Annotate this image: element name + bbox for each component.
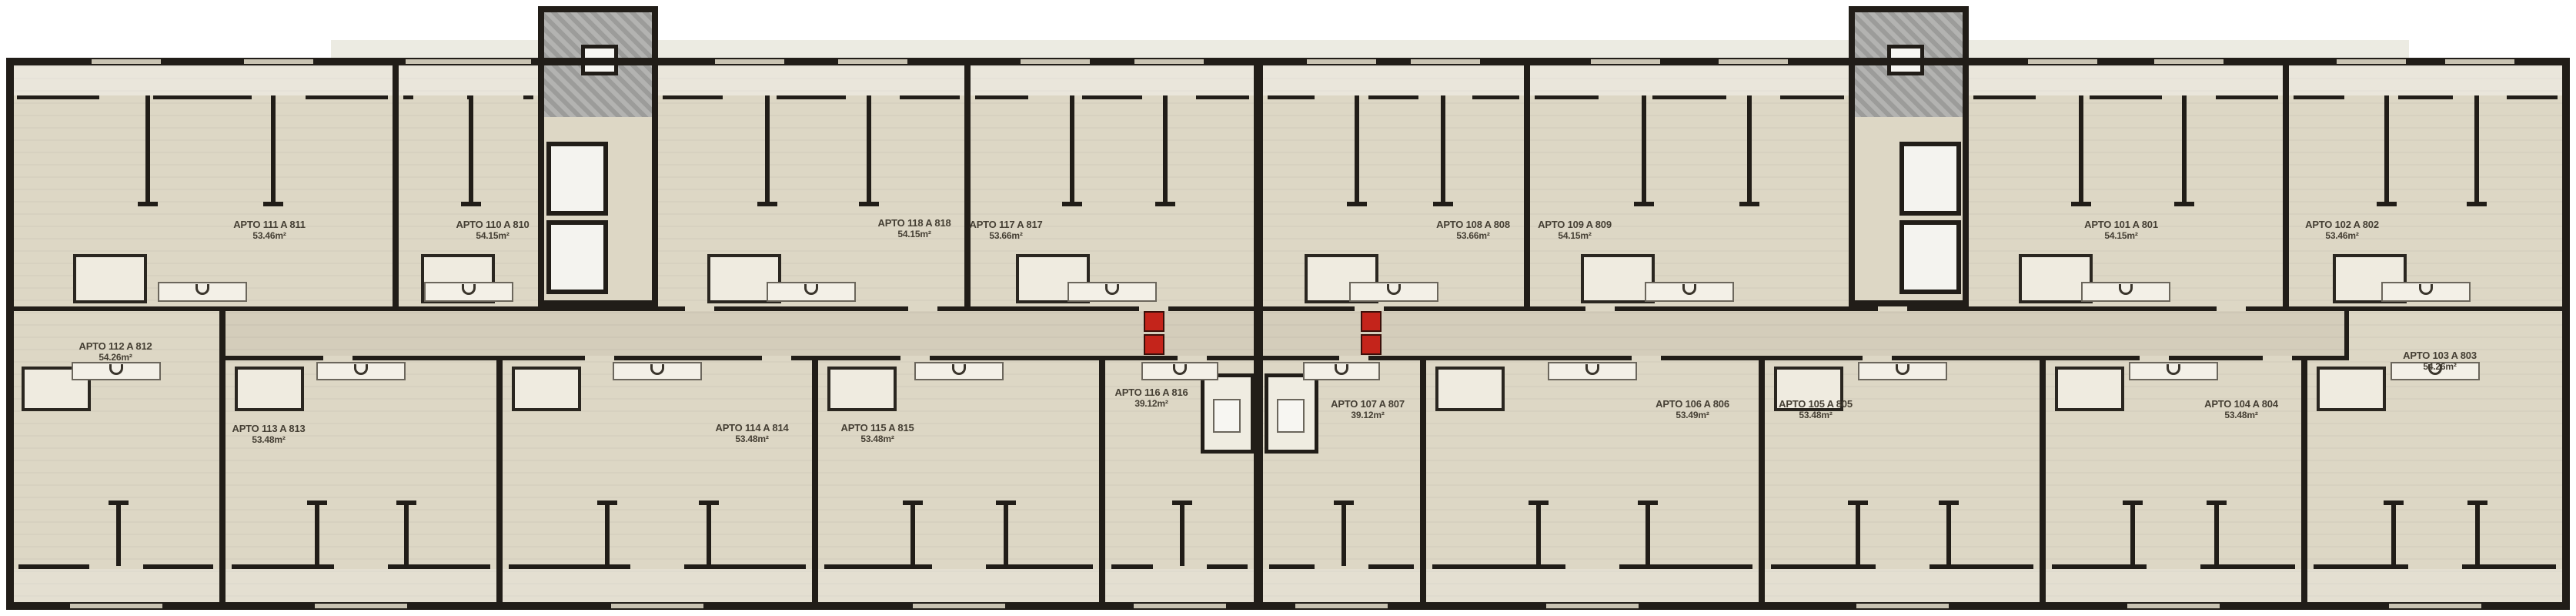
balcony-wall bbox=[663, 95, 960, 99]
partition-tick bbox=[1347, 202, 1367, 206]
apartment-label-107: APTO 107 A 807 39.12m² bbox=[1331, 399, 1405, 420]
door-gap bbox=[685, 306, 714, 311]
balcony-wall bbox=[1269, 564, 1315, 569]
partition-stub bbox=[2475, 500, 2480, 566]
lower-balcony-strip bbox=[14, 569, 2562, 602]
elevator-left-2 bbox=[546, 220, 608, 294]
wall bbox=[219, 356, 2349, 360]
window bbox=[611, 604, 703, 608]
apartment-label-102: APTO 102 A 802 53.46m² bbox=[2305, 219, 2379, 241]
window-gap bbox=[1726, 95, 1780, 99]
partition-stub bbox=[867, 95, 871, 206]
partition-stub bbox=[1180, 500, 1184, 566]
partition-stub bbox=[1946, 500, 1951, 566]
window bbox=[1719, 59, 1788, 64]
balcony-wall bbox=[2052, 564, 2147, 569]
wall bbox=[812, 360, 818, 604]
partition-stub bbox=[1536, 500, 1541, 566]
balcony-wall bbox=[1207, 564, 1248, 569]
partition-tick bbox=[2123, 500, 2143, 505]
apartment-area: 53.48m² bbox=[716, 434, 789, 444]
balcony-wall bbox=[2462, 564, 2557, 569]
partition-stub bbox=[1070, 95, 1074, 206]
partition-tick bbox=[1172, 500, 1192, 505]
window bbox=[315, 604, 407, 608]
partition-stub bbox=[2079, 95, 2083, 206]
wall bbox=[2283, 65, 2289, 306]
window bbox=[2028, 59, 2097, 64]
apartment-area: 54.15m² bbox=[1538, 230, 1612, 241]
partition-stub bbox=[2214, 500, 2219, 566]
partition-tick bbox=[996, 500, 1016, 505]
apartment-number: APTO 110 A 810 bbox=[456, 219, 530, 230]
window bbox=[462, 59, 531, 64]
apartment-label-109: APTO 109 A 809 54.15m² bbox=[1538, 219, 1612, 241]
door-gap bbox=[323, 356, 352, 360]
partition-stub bbox=[2474, 95, 2479, 206]
apartment-area: 53.46m² bbox=[2305, 230, 2379, 241]
window-gap bbox=[846, 95, 900, 99]
partition-tick bbox=[2207, 500, 2227, 505]
apartment-number: APTO 102 A 802 bbox=[2305, 219, 2379, 230]
apartment-label-103: APTO 103 A 803 54.26m² bbox=[2403, 350, 2477, 372]
apartment-number: APTO 114 A 814 bbox=[716, 422, 789, 434]
bathroom bbox=[827, 367, 897, 411]
wall bbox=[1420, 360, 1426, 604]
wall bbox=[1099, 360, 1105, 604]
wall bbox=[2040, 360, 2046, 604]
bathroom bbox=[235, 367, 304, 411]
bathroom bbox=[2317, 367, 2386, 411]
apartment-number: APTO 116 A 816 bbox=[1115, 387, 1188, 398]
door-gap bbox=[1339, 356, 1368, 360]
partition-stub bbox=[315, 500, 319, 566]
window bbox=[1134, 604, 1226, 608]
partition-tick bbox=[307, 500, 327, 505]
balcony-wall bbox=[1535, 95, 1844, 99]
partition-tick bbox=[597, 500, 617, 505]
partition-stub bbox=[2384, 95, 2389, 206]
apartment-area: 54.26m² bbox=[2403, 361, 2477, 372]
bathroom bbox=[2055, 367, 2124, 411]
balcony-wall bbox=[684, 564, 806, 569]
partition-stub bbox=[404, 500, 409, 566]
partition-tick bbox=[263, 202, 283, 206]
door-gap bbox=[2263, 356, 2292, 360]
door-gap bbox=[1178, 356, 1207, 360]
partition-stub bbox=[2130, 500, 2135, 566]
balcony-wall bbox=[1111, 564, 1153, 569]
window-gap bbox=[2344, 95, 2398, 99]
partition-stub bbox=[1341, 500, 1346, 566]
partition-tick bbox=[1638, 500, 1658, 505]
wall bbox=[1759, 360, 1765, 604]
apartment-label-114: APTO 114 A 814 53.48m² bbox=[716, 423, 789, 444]
partition-tick bbox=[1634, 202, 1654, 206]
window bbox=[2127, 604, 2220, 608]
wall bbox=[393, 65, 399, 306]
partition-tick bbox=[699, 500, 719, 505]
partition-tick bbox=[109, 500, 129, 505]
partition-tick bbox=[903, 500, 923, 505]
bathroom bbox=[512, 367, 581, 411]
partition-stub bbox=[145, 95, 150, 206]
balcony-wall bbox=[1771, 564, 1876, 569]
apartment-area: 53.48m² bbox=[841, 434, 914, 444]
partition-tick bbox=[1433, 202, 1453, 206]
apartment-label-105: APTO 105 A 805 53.48m² bbox=[1779, 399, 1853, 420]
window-gap bbox=[1418, 95, 1472, 99]
partition-tick bbox=[1848, 500, 1868, 505]
window bbox=[2389, 604, 2481, 608]
apartment-number: APTO 108 A 808 bbox=[1436, 219, 1510, 230]
door-gap bbox=[1863, 356, 1892, 360]
apartment-label-104: APTO 104 A 804 53.48m² bbox=[2204, 399, 2278, 420]
window-gap bbox=[2453, 95, 2507, 99]
partition-tick bbox=[138, 202, 158, 206]
door-gap bbox=[900, 356, 930, 360]
wall bbox=[2562, 58, 2570, 610]
wall bbox=[2344, 306, 2349, 360]
partition-stub bbox=[469, 95, 473, 206]
apartment-number: APTO 104 A 804 bbox=[2204, 398, 2278, 410]
apartment-label-106: APTO 106 A 806 53.49m² bbox=[1656, 399, 1729, 420]
elevator-right-2 bbox=[1899, 220, 1961, 294]
fire-door-marker bbox=[1144, 334, 1164, 355]
partition-stub bbox=[2182, 95, 2187, 206]
window bbox=[1411, 59, 1480, 64]
balcony-wall bbox=[1973, 95, 2278, 99]
partition-tick bbox=[461, 202, 481, 206]
apartment-label-116: APTO 116 A 816 39.12m² bbox=[1115, 387, 1188, 409]
partition-stub bbox=[1642, 95, 1646, 206]
balcony-wall bbox=[2314, 564, 2408, 569]
apartment-label-117: APTO 117 A 817 53.66m² bbox=[970, 219, 1043, 241]
apartment-number: APTO 113 A 813 bbox=[232, 423, 306, 434]
elevator-right-1 bbox=[1899, 142, 1961, 216]
wall bbox=[2349, 306, 2562, 311]
partition-stub bbox=[2391, 500, 2396, 566]
partition-stub bbox=[1163, 95, 1168, 206]
apartment-area: 54.26m² bbox=[79, 352, 152, 363]
partition-tick bbox=[757, 202, 777, 206]
window bbox=[2154, 59, 2224, 64]
wall bbox=[964, 65, 971, 306]
wall bbox=[1254, 58, 1263, 610]
partition-stub bbox=[271, 95, 276, 206]
elevator-left-1 bbox=[546, 142, 608, 216]
partition-stub bbox=[1004, 500, 1008, 566]
window bbox=[1134, 59, 1204, 64]
window-gap bbox=[469, 95, 523, 99]
partition-tick bbox=[2467, 500, 2487, 505]
apartment-number: APTO 109 A 809 bbox=[1538, 219, 1612, 230]
window-gap bbox=[1142, 95, 1196, 99]
apartment-area: 53.66m² bbox=[1436, 230, 1510, 241]
apartment-label-118: APTO 118 A 818 54.15m² bbox=[878, 218, 951, 239]
door-gap bbox=[2140, 356, 2169, 360]
floor-plan: APTO 111 A 811 53.46m² APTO 110 A 810 54… bbox=[0, 0, 2576, 616]
balcony-wall bbox=[509, 564, 630, 569]
window bbox=[913, 604, 1005, 608]
balcony-wall bbox=[1929, 564, 2034, 569]
door-gap bbox=[585, 356, 614, 360]
partition-tick bbox=[1939, 500, 1959, 505]
door-gap bbox=[762, 356, 791, 360]
partition-tick bbox=[1062, 202, 1082, 206]
balcony-wall bbox=[388, 564, 490, 569]
window-gap bbox=[2162, 95, 2216, 99]
wall bbox=[219, 306, 226, 604]
corridor bbox=[226, 311, 2344, 356]
balcony-wall bbox=[17, 95, 388, 99]
wall bbox=[6, 58, 14, 610]
window bbox=[838, 59, 907, 64]
balcony-wall bbox=[143, 564, 214, 569]
window bbox=[1021, 59, 1090, 64]
balcony-wall bbox=[986, 564, 1094, 569]
window-gap bbox=[252, 95, 306, 99]
partition-tick bbox=[859, 202, 879, 206]
apartment-number: APTO 118 A 818 bbox=[878, 217, 951, 229]
shaft-equipment-left bbox=[1213, 399, 1241, 433]
apartment-number: APTO 105 A 805 bbox=[1779, 398, 1853, 410]
partition-tick bbox=[1529, 500, 1549, 505]
partition-tick bbox=[2174, 202, 2194, 206]
apartment-area: 53.46m² bbox=[233, 230, 306, 241]
window-gap bbox=[1315, 95, 1368, 99]
window bbox=[1307, 59, 1376, 64]
apartment-area: 54.15m² bbox=[2084, 230, 2158, 241]
partition-tick bbox=[1739, 202, 1759, 206]
partition-tick bbox=[2384, 500, 2404, 505]
door-gap bbox=[908, 306, 937, 311]
door-gap bbox=[1632, 356, 1661, 360]
apartment-area: 53.48m² bbox=[232, 434, 306, 445]
door-gap bbox=[2217, 306, 2246, 311]
partition-stub bbox=[605, 500, 610, 566]
door-gap bbox=[1878, 306, 1907, 311]
window bbox=[1546, 604, 1639, 608]
partition-stub bbox=[910, 500, 915, 566]
apartment-area: 39.12m² bbox=[1115, 398, 1188, 409]
partition-tick bbox=[2467, 202, 2487, 206]
partition-stub bbox=[1355, 95, 1359, 206]
apartment-number: APTO 112 A 812 bbox=[79, 340, 152, 352]
apartment-area: 53.66m² bbox=[970, 230, 1043, 241]
apartment-label-110: APTO 110 A 810 54.15m² bbox=[456, 219, 530, 241]
balcony-wall bbox=[232, 564, 334, 569]
partition-tick bbox=[396, 500, 416, 505]
window bbox=[2337, 59, 2406, 64]
fire-door-marker bbox=[1144, 311, 1164, 332]
apartment-label-112: APTO 112 A 812 54.26m² bbox=[79, 341, 152, 363]
balcony-wall bbox=[824, 564, 932, 569]
apartment-number: APTO 117 A 817 bbox=[970, 219, 1043, 230]
wall bbox=[2301, 360, 2307, 604]
apartment-label-111: APTO 111 A 811 53.46m² bbox=[233, 219, 306, 241]
wall bbox=[1524, 65, 1530, 306]
window bbox=[70, 604, 162, 608]
partition-stub bbox=[1856, 500, 1860, 566]
apartment-number: APTO 111 A 811 bbox=[233, 219, 306, 230]
apartment-number: APTO 101 A 801 bbox=[2084, 219, 2158, 230]
wall bbox=[12, 306, 219, 311]
apartment-number: APTO 115 A 815 bbox=[841, 422, 914, 434]
partition-stub bbox=[1747, 95, 1752, 206]
apartment-label-115: APTO 115 A 815 53.48m² bbox=[841, 423, 914, 444]
apartment-label-101: APTO 101 A 801 54.15m² bbox=[2084, 219, 2158, 241]
apartment-area: 54.15m² bbox=[878, 229, 951, 239]
window bbox=[92, 59, 161, 64]
balcony-wall bbox=[1432, 564, 1565, 569]
balcony-wall bbox=[18, 564, 89, 569]
window bbox=[244, 59, 313, 64]
partition-tick bbox=[1155, 202, 1175, 206]
partition-stub bbox=[1645, 500, 1650, 566]
partition-stub bbox=[116, 500, 121, 566]
partition-tick bbox=[1334, 500, 1354, 505]
balcony-wall bbox=[2294, 95, 2558, 99]
partition-stub bbox=[707, 500, 711, 566]
fire-door-marker bbox=[1361, 334, 1382, 355]
shaft-equipment-right bbox=[1277, 399, 1305, 433]
window-gap bbox=[413, 95, 467, 99]
balcony-wall bbox=[975, 95, 1249, 99]
apartment-label-108: APTO 108 A 808 53.66m² bbox=[1436, 219, 1510, 241]
apartment-area: 54.15m² bbox=[456, 230, 530, 241]
apartment-number: APTO 106 A 806 bbox=[1656, 398, 1729, 410]
apartment-label-113: APTO 113 A 813 53.48m² bbox=[232, 423, 306, 445]
balcony-wall bbox=[1619, 564, 1752, 569]
fire-door-marker bbox=[1361, 311, 1382, 332]
balcony-wall bbox=[1268, 95, 1519, 99]
apartment-area: 53.48m² bbox=[1779, 410, 1853, 420]
apartment-number: APTO 103 A 803 bbox=[2403, 350, 2477, 361]
window bbox=[2445, 59, 2514, 64]
partition-tick bbox=[2377, 202, 2397, 206]
window bbox=[715, 59, 784, 64]
balcony-wall bbox=[2200, 564, 2295, 569]
partition-tick bbox=[2071, 202, 2091, 206]
partition-stub bbox=[1441, 95, 1445, 206]
window bbox=[1591, 59, 1660, 64]
apartment-number: APTO 107 A 807 bbox=[1331, 398, 1405, 410]
bathroom bbox=[73, 254, 147, 303]
apartment-area: 53.49m² bbox=[1656, 410, 1729, 420]
window bbox=[1295, 604, 1388, 608]
bathroom bbox=[1435, 367, 1505, 411]
door-gap bbox=[1585, 306, 1615, 311]
wall bbox=[219, 306, 2349, 311]
wall bbox=[496, 360, 503, 604]
apartment-area: 53.48m² bbox=[2204, 410, 2278, 420]
balcony-wall bbox=[1368, 564, 1414, 569]
window bbox=[1856, 604, 1949, 608]
apartment-area: 39.12m² bbox=[1331, 410, 1405, 420]
partition-stub bbox=[765, 95, 770, 206]
bathroom bbox=[1581, 254, 1655, 303]
